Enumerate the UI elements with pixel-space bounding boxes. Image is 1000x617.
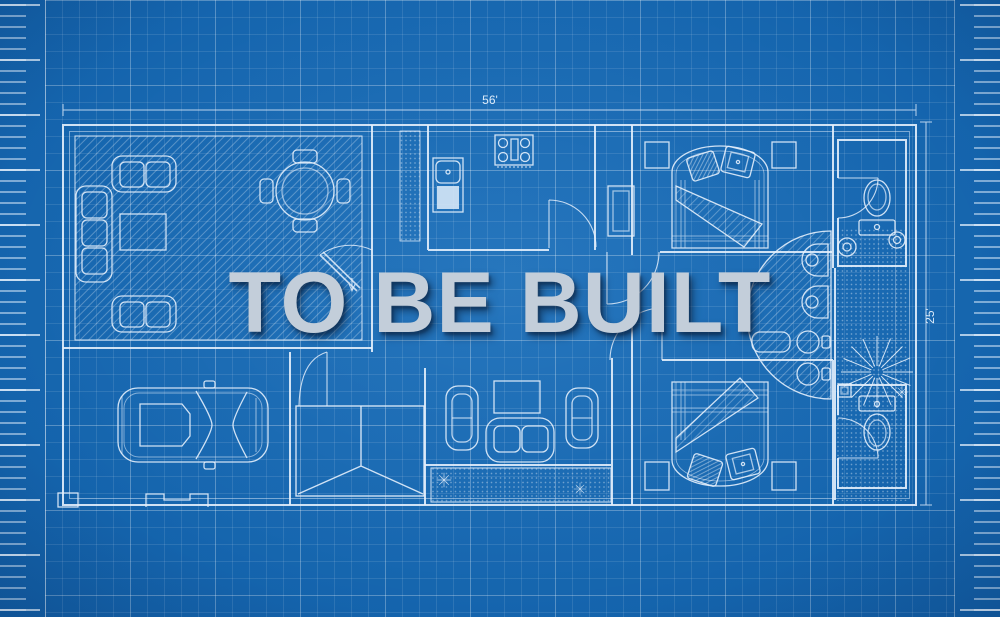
- garage-contents: [58, 381, 268, 507]
- armchair-icon: [446, 386, 478, 450]
- car-icon: [118, 381, 268, 469]
- closet-icon: [608, 186, 634, 236]
- roof-diagonals-icon: [298, 406, 423, 494]
- sink-unit-icon: [433, 158, 463, 212]
- stove-icon: [495, 135, 533, 167]
- kitchen-door-icon: [549, 200, 596, 248]
- blanket-icon: [676, 378, 758, 452]
- pillow-icon: [720, 146, 755, 178]
- nightstand-icon: [645, 142, 669, 168]
- pantry-icon: [400, 131, 420, 241]
- to-be-built-watermark: TO BE BUILT: [0, 260, 1000, 346]
- width-dimension-label: 56': [482, 93, 498, 107]
- blanket-icon: [676, 186, 762, 247]
- wc-top-door-icon: [838, 178, 878, 218]
- nightstand-icon: [772, 462, 796, 490]
- double-bed-icon: [672, 378, 768, 487]
- tv-console-icon: [494, 381, 540, 413]
- nightstand-icon: [772, 142, 796, 168]
- nightstand-icon: [645, 462, 669, 490]
- entry-double-door-icon: [299, 352, 327, 406]
- bedroom-top-furniture: [645, 142, 796, 248]
- blueprint-canvas: 56' 25': [0, 0, 1000, 617]
- armchair-icon: [566, 388, 598, 448]
- bedroom-bottom-furniture: [645, 378, 796, 490]
- kitchen-fixtures: [433, 135, 533, 212]
- loveseat-icon: [486, 418, 554, 462]
- double-bed-icon: [672, 146, 768, 248]
- pillow-icon: [686, 150, 720, 181]
- pillow-icon: [725, 448, 760, 480]
